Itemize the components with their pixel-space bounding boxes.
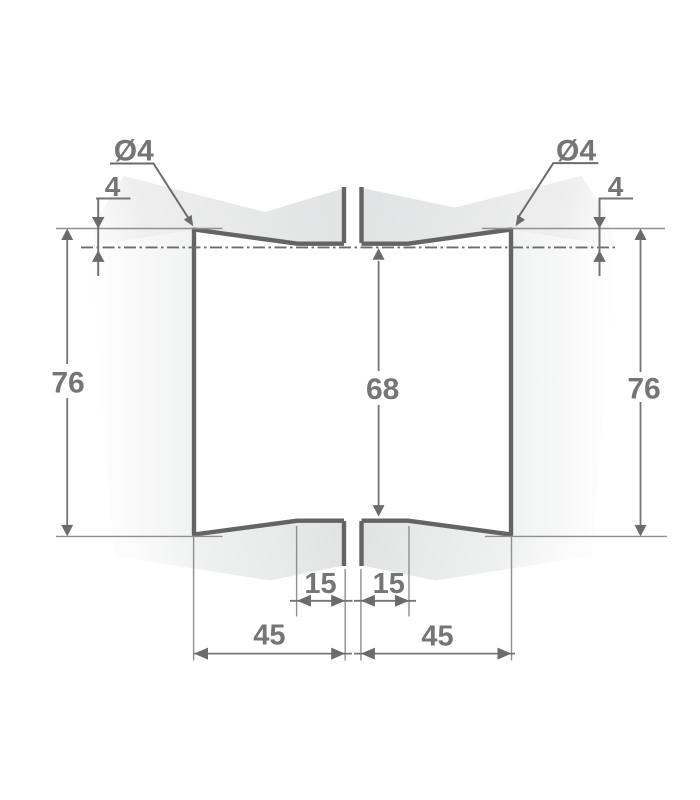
svg-text:Ø4: Ø4	[114, 135, 154, 168]
svg-text:15: 15	[304, 568, 336, 600]
svg-text:15: 15	[373, 568, 405, 600]
svg-text:45: 45	[421, 620, 453, 652]
svg-text:45: 45	[253, 620, 285, 652]
svg-text:76: 76	[627, 372, 660, 405]
svg-text:4: 4	[608, 171, 624, 202]
svg-text:Ø4: Ø4	[556, 135, 596, 168]
svg-text:4: 4	[105, 171, 121, 202]
svg-text:76: 76	[51, 366, 84, 399]
svg-text:68: 68	[366, 373, 399, 406]
